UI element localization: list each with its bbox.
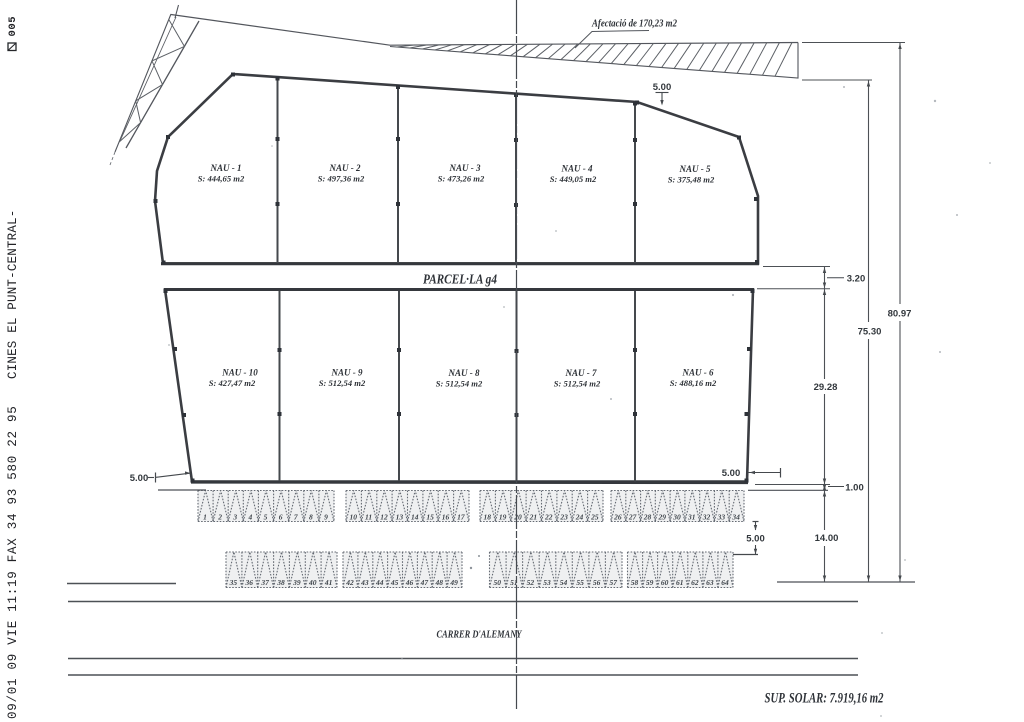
svg-text:S: 512,54 m2: S: 512,54 m2 (554, 379, 601, 389)
svg-text:30: 30 (672, 513, 681, 522)
svg-text:SUP. SOLAR: 7.919,16 m2: SUP. SOLAR: 7.919,16 m2 (765, 691, 884, 707)
svg-text:59: 59 (646, 578, 654, 587)
svg-text:50: 50 (494, 578, 502, 587)
svg-text:S: 497,36 m2: S: 497,36 m2 (318, 174, 365, 184)
svg-text:PARCEL·LA g4: PARCEL·LA g4 (423, 273, 497, 288)
svg-text:21: 21 (529, 513, 538, 522)
svg-text:64: 64 (721, 578, 729, 587)
svg-text:NAU - 3: NAU - 3 (449, 163, 481, 173)
svg-text:S: 488,16 m2: S: 488,16 m2 (670, 378, 717, 388)
svg-text:44: 44 (375, 578, 384, 587)
svg-text:36: 36 (245, 578, 254, 587)
svg-text:40: 40 (308, 578, 317, 587)
svg-text:54: 54 (560, 578, 568, 587)
svg-text:15: 15 (426, 513, 434, 522)
svg-text:35: 35 (229, 578, 238, 587)
svg-text:53: 53 (543, 578, 551, 587)
svg-text:17: 17 (457, 513, 465, 522)
svg-text:CARRER D'ALEMANY: CARRER D'ALEMANY (437, 629, 523, 641)
svg-text:S: 449,05 m2: S: 449,05 m2 (550, 174, 597, 184)
svg-text:S: 427,47 m2: S: 427,47 m2 (209, 378, 256, 388)
svg-text:5.00: 5.00 (746, 534, 765, 545)
svg-text:33: 33 (717, 513, 726, 522)
svg-text:55: 55 (576, 578, 584, 587)
svg-text:16: 16 (442, 513, 450, 522)
svg-text:9: 9 (324, 513, 328, 522)
svg-text:29: 29 (657, 513, 666, 522)
svg-text:09/01 09 VIE 11:19 FAX 34 93: 09/01 09 VIE 11:19 FAX 34 93 580 22 95 (6, 405, 20, 719)
svg-text:18: 18 (483, 513, 491, 522)
svg-text:3: 3 (232, 513, 237, 522)
svg-text:11: 11 (365, 513, 372, 522)
svg-text:NAU - 7: NAU - 7 (565, 368, 597, 378)
svg-text:58: 58 (631, 578, 639, 587)
svg-text:38: 38 (276, 578, 285, 587)
svg-text:19: 19 (499, 513, 507, 522)
svg-text:31: 31 (687, 513, 696, 522)
svg-text:S: 512,54 m2: S: 512,54 m2 (436, 379, 483, 389)
svg-text:32: 32 (702, 513, 711, 522)
svg-text:75.30: 75.30 (858, 327, 882, 338)
svg-text:25: 25 (590, 513, 599, 522)
svg-text:10: 10 (349, 513, 357, 522)
svg-text:13: 13 (396, 513, 404, 522)
svg-text:S: 375,48 m2: S: 375,48 m2 (668, 175, 715, 185)
svg-text:49: 49 (449, 578, 458, 587)
svg-text:1: 1 (203, 513, 207, 522)
svg-text:23: 23 (559, 513, 568, 522)
svg-text:34: 34 (731, 513, 740, 522)
svg-text:NAU - 2: NAU - 2 (329, 163, 361, 173)
svg-text:47: 47 (420, 578, 429, 587)
svg-text:46: 46 (405, 578, 414, 587)
svg-text:22: 22 (544, 513, 553, 522)
svg-text:5.00: 5.00 (653, 82, 672, 93)
svg-text:CINES EL PUNT-CENTRAL-: CINES EL PUNT-CENTRAL- (6, 210, 20, 379)
svg-text:37: 37 (260, 578, 269, 587)
svg-text:39: 39 (292, 578, 301, 587)
svg-text:27: 27 (628, 513, 637, 522)
svg-text:48: 48 (434, 578, 443, 587)
svg-text:80.97: 80.97 (888, 309, 912, 320)
svg-text:4: 4 (248, 513, 253, 522)
svg-text:NAU - 10: NAU - 10 (221, 368, 258, 378)
svg-text:14.00: 14.00 (815, 533, 839, 544)
svg-text:NAU - 5: NAU - 5 (679, 164, 711, 174)
svg-text:6: 6 (279, 513, 283, 522)
svg-text:45: 45 (390, 578, 399, 587)
svg-text:S: 512,54 m2: S: 512,54 m2 (319, 378, 366, 388)
svg-text:52: 52 (527, 578, 535, 587)
svg-text:24: 24 (575, 513, 584, 522)
svg-text:63: 63 (706, 578, 714, 587)
svg-text:20: 20 (513, 513, 522, 522)
svg-text:S: 473,26 m2: S: 473,26 m2 (438, 174, 485, 184)
svg-text:1.00: 1.00 (845, 483, 864, 494)
svg-text:26: 26 (613, 513, 622, 522)
svg-text:61: 61 (676, 578, 684, 587)
svg-text:005: 005 (7, 16, 19, 37)
svg-text:2: 2 (217, 513, 222, 522)
svg-text:NAU - 1: NAU - 1 (210, 163, 242, 173)
svg-text:7: 7 (294, 513, 298, 522)
svg-text:NAU - 6: NAU - 6 (682, 368, 714, 378)
svg-text:62: 62 (691, 578, 699, 587)
svg-text:42: 42 (345, 578, 354, 587)
svg-text:43: 43 (360, 578, 369, 587)
svg-text:5.00: 5.00 (722, 468, 741, 479)
svg-text:12: 12 (380, 513, 388, 522)
svg-text:56: 56 (593, 578, 601, 587)
svg-text:5: 5 (264, 513, 268, 522)
svg-text:5.00: 5.00 (130, 473, 149, 484)
svg-text:57: 57 (609, 578, 617, 587)
svg-text:NAU - 9: NAU - 9 (331, 368, 363, 378)
svg-text:28: 28 (643, 513, 652, 522)
svg-text:NAU - 8: NAU - 8 (448, 368, 480, 378)
svg-text:14: 14 (411, 513, 419, 522)
svg-text:S: 444,65 m2: S: 444,65 m2 (198, 174, 245, 184)
svg-text:29.28: 29.28 (814, 382, 838, 393)
svg-text:41: 41 (324, 578, 333, 587)
svg-text:Afectació de 170,23 m2: Afectació de 170,23 m2 (591, 19, 677, 30)
svg-text:NAU - 4: NAU - 4 (561, 164, 593, 174)
svg-text:8: 8 (309, 513, 313, 522)
svg-text:60: 60 (661, 578, 669, 587)
svg-text:3.20: 3.20 (847, 274, 866, 285)
